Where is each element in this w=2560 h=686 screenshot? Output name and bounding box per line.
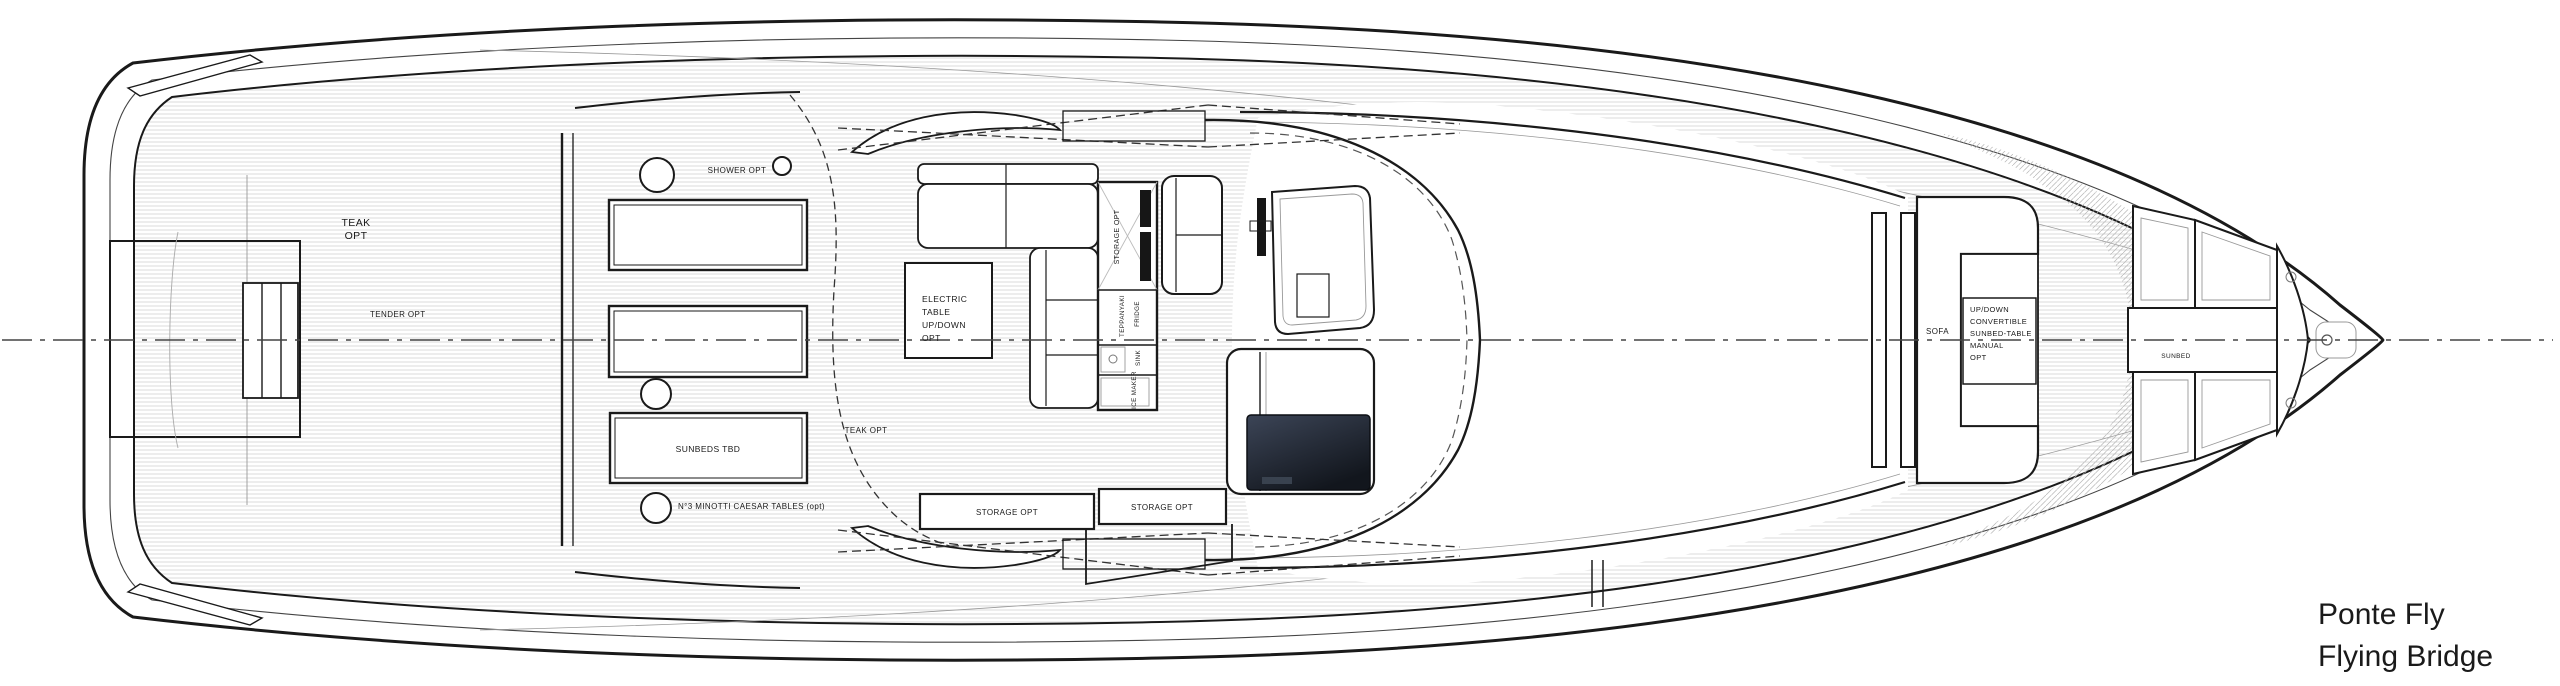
deck-title-english: Flying Bridge: [2318, 640, 2493, 673]
yacht-flybridge-plan: TEAK OPT TENDER OPT SHOWER OPT SUNBEDS T…: [0, 0, 2560, 686]
minotti-tables-label: N°3 MINOTTI CAESAR TABLES (opt): [678, 502, 825, 511]
grill-slat-2: [1140, 232, 1151, 281]
shower-label: SHOWER OPT: [708, 166, 767, 175]
sofa-seat-top: [918, 184, 1098, 248]
teak-aft-label-1: TEAK: [341, 217, 370, 229]
bow-panel-bottom-left: [2133, 372, 2195, 474]
deck-title-italian: Ponte Fly: [2318, 598, 2445, 631]
sunbed-pad-2: [609, 306, 807, 377]
helm-console: [1227, 349, 1374, 494]
helm-screen-slot: [1262, 477, 1292, 484]
storage-right-label: STORAGE OPT: [1131, 503, 1193, 512]
sofa-label: SOFA: [1926, 327, 1949, 336]
table-circle-aft: [641, 493, 671, 523]
console-mast: [1257, 198, 1266, 256]
sink-label: SINK: [1135, 350, 1142, 367]
sofa-backrest-top: [918, 164, 1098, 184]
teppanyaki-label: TEPPANYAKI: [1119, 295, 1126, 337]
shower-circle-large: [640, 158, 674, 192]
sunbed-pad-1: [609, 200, 807, 270]
bow-panel-top-left: [2133, 206, 2195, 308]
open-deck-white: [1232, 102, 1908, 584]
wet-bar: [1098, 182, 1157, 410]
teak-aft-label-2: OPT: [345, 230, 368, 242]
deck-plan-canvas: TEAK OPT TENDER OPT SHOWER OPT SUNBEDS T…: [0, 0, 2560, 686]
hardtop-open-zone: [1205, 102, 1908, 584]
table-circle-mid: [641, 379, 671, 409]
tender-label: TENDER OPT: [370, 310, 426, 319]
shower-circle-small: [773, 157, 791, 175]
sofa-seat-side: [1030, 248, 1098, 408]
console-pod-outline: [1272, 186, 1374, 334]
ice-maker-label: ICE MAKER: [1131, 371, 1138, 409]
fridge-label: FRIDGE: [1134, 301, 1141, 327]
grill-slat-1: [1140, 190, 1151, 227]
storage-left-label: STORAGE OPT: [976, 508, 1038, 517]
bar-storage-label: STORAGE OPT: [1114, 209, 1121, 264]
teak-mid-label: TEAK OPT: [845, 426, 888, 435]
sunbeds-tbd-label: SUNBEDS TBD: [676, 444, 741, 454]
helm-seats: [1162, 176, 1222, 294]
sunbed-bow-label: SUNBED: [2161, 353, 2191, 360]
